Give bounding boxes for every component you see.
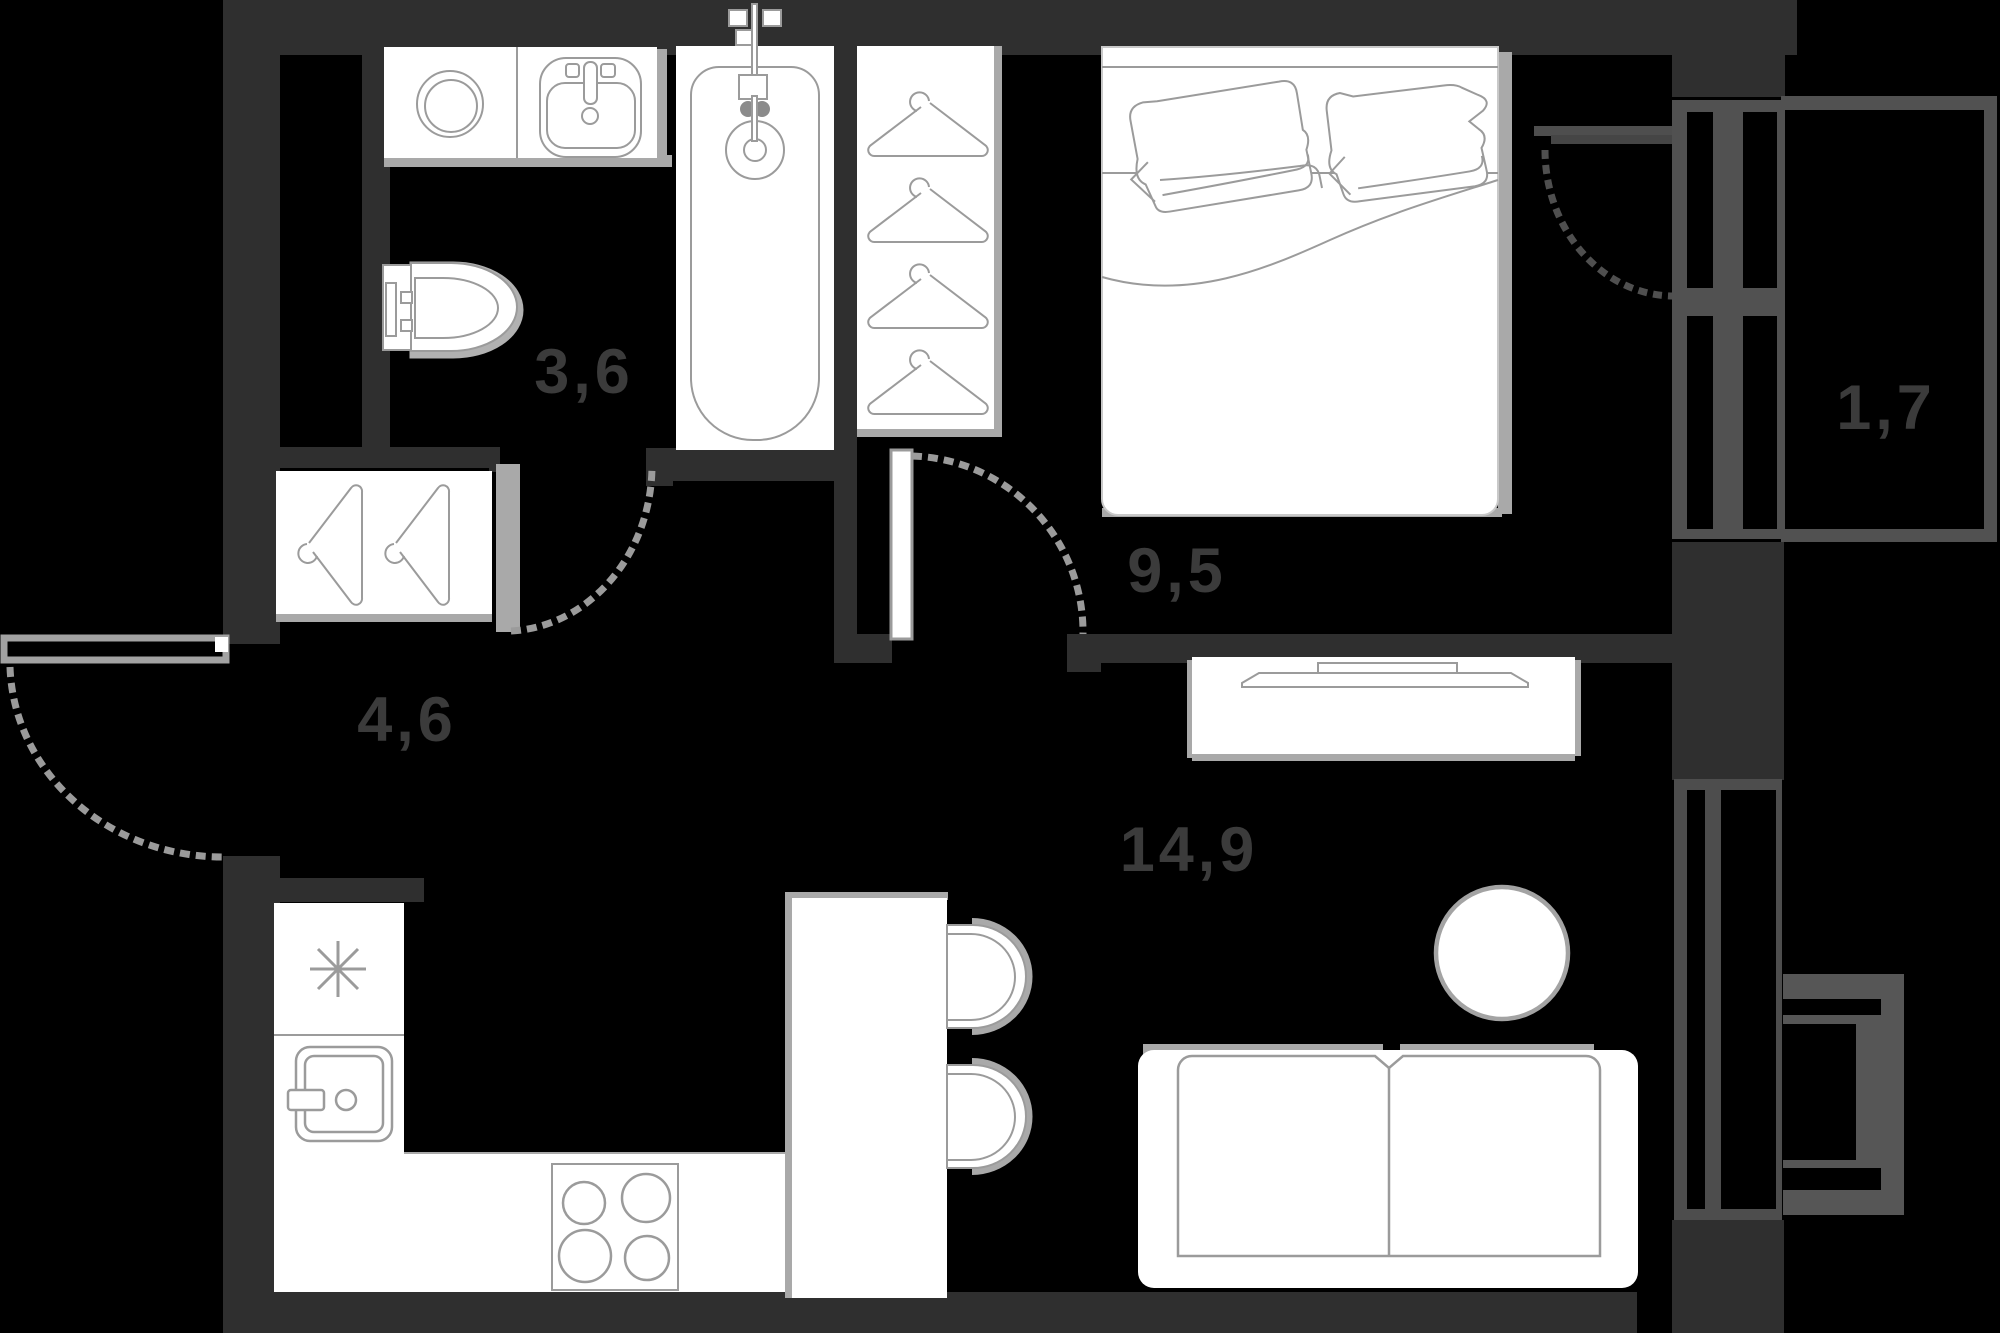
svg-text:1,7: 1,7 bbox=[1836, 373, 1936, 443]
svg-text:4,6: 4,6 bbox=[357, 685, 457, 755]
svg-text:3,6: 3,6 bbox=[534, 337, 634, 407]
svg-text:9,5: 9,5 bbox=[1127, 536, 1227, 606]
svg-text:14,9: 14,9 bbox=[1120, 815, 1259, 885]
